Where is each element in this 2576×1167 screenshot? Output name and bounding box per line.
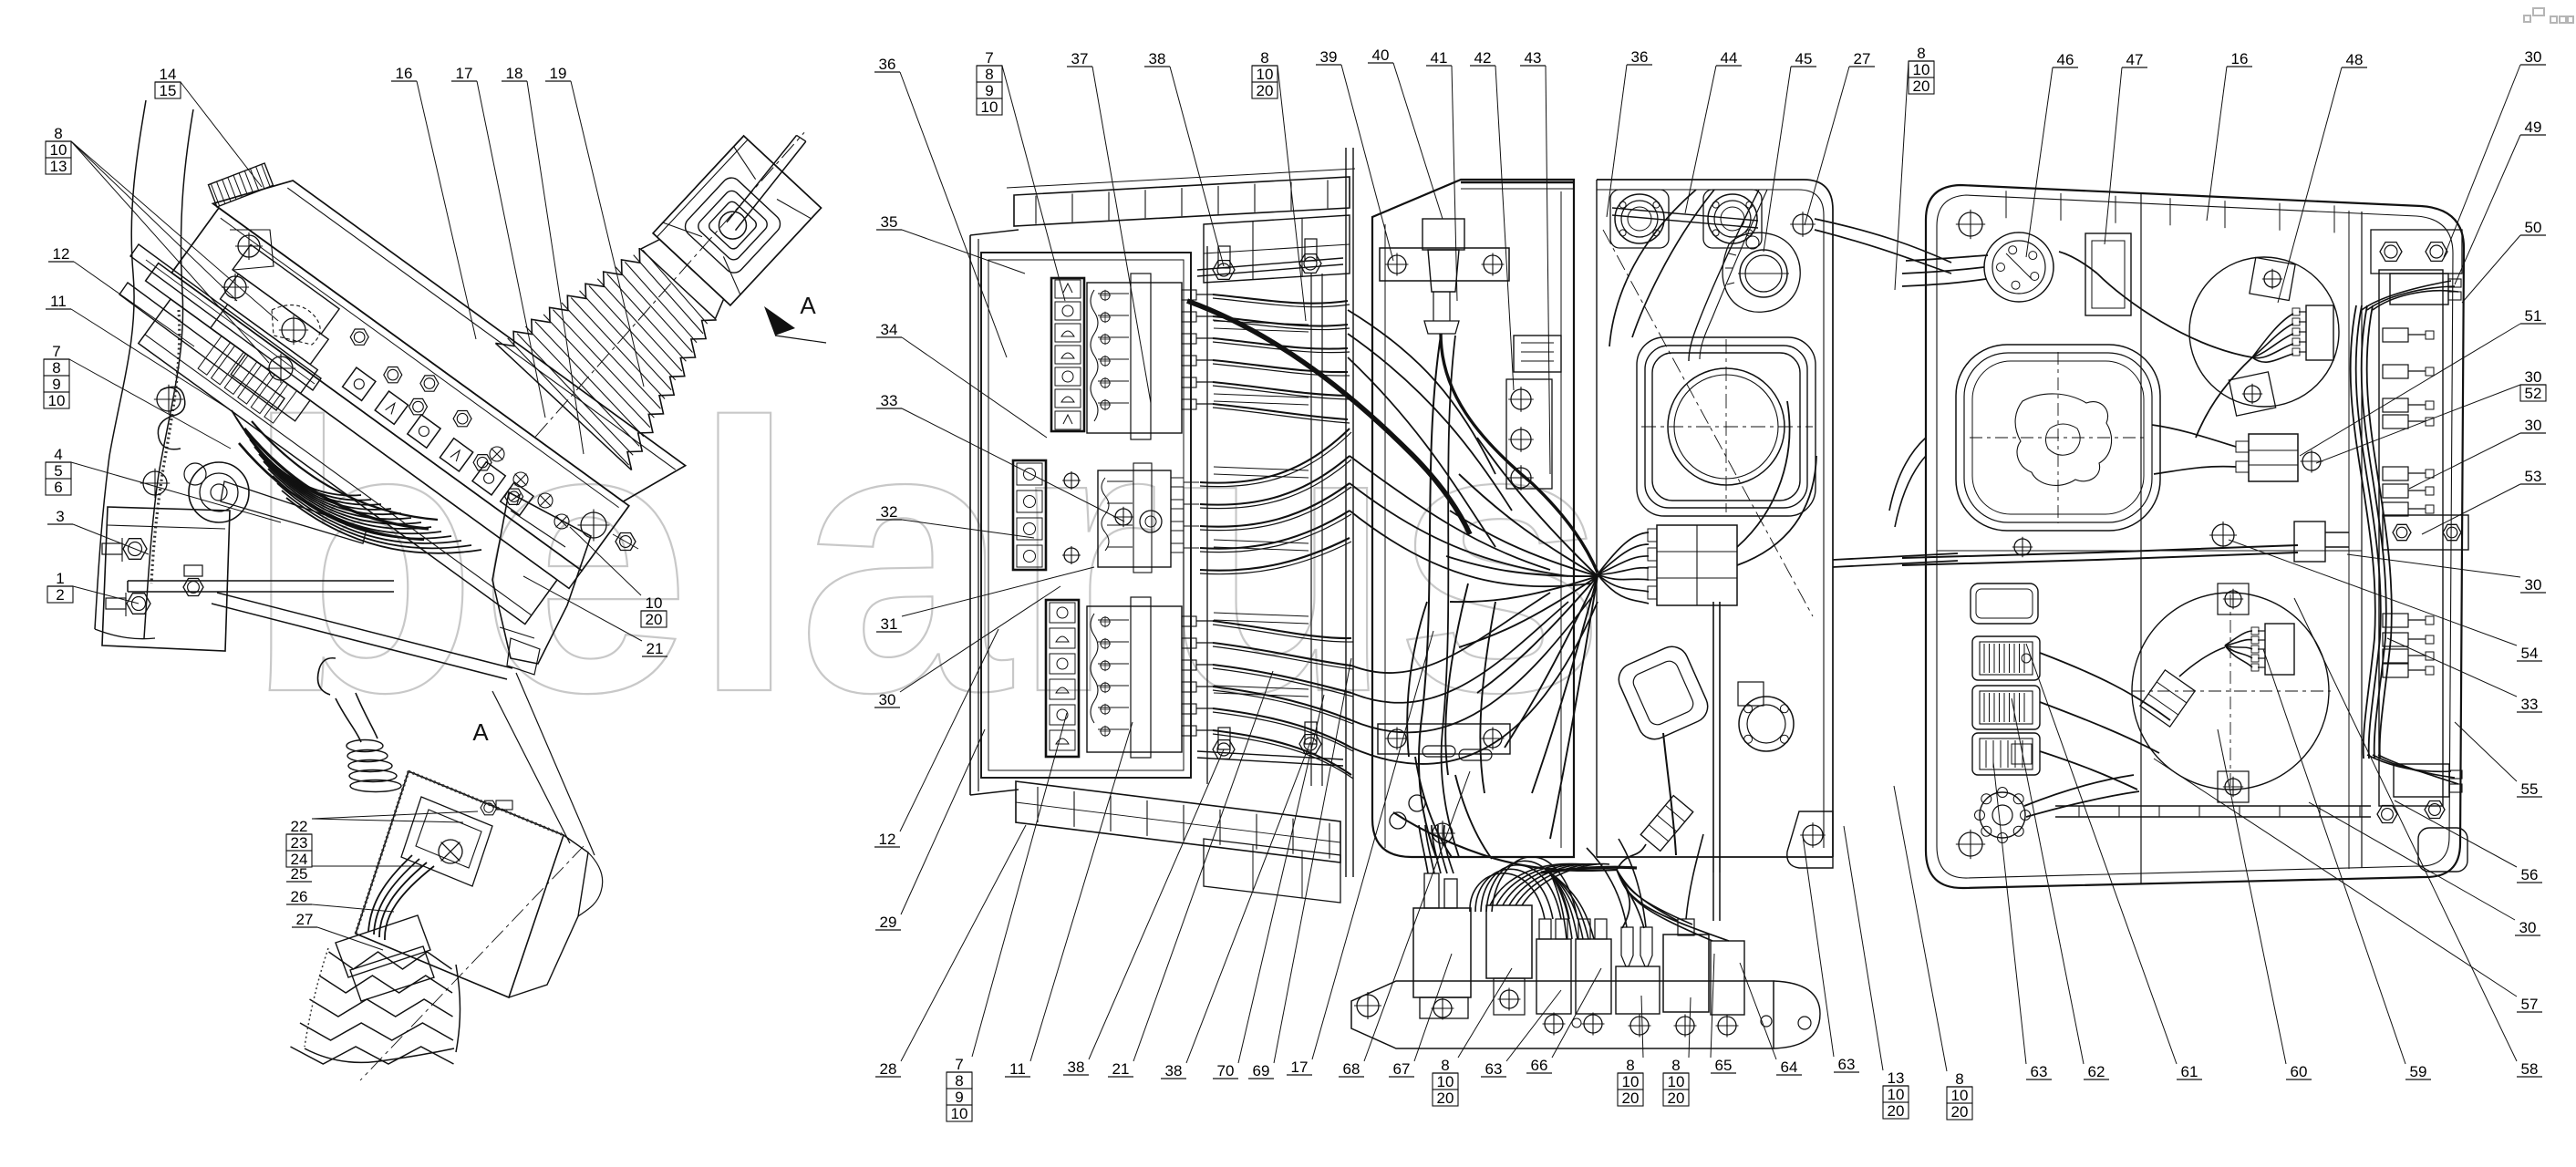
svg-text:38: 38 <box>1149 50 1166 67</box>
svg-text:21: 21 <box>1112 1060 1130 1078</box>
svg-text:30: 30 <box>2525 48 2542 66</box>
svg-text:67: 67 <box>1393 1060 1411 1078</box>
svg-text:17: 17 <box>1291 1059 1309 1076</box>
svg-text:3: 3 <box>56 508 64 525</box>
svg-text:13: 13 <box>50 158 67 175</box>
svg-text:21: 21 <box>647 640 664 657</box>
svg-text:27: 27 <box>296 911 314 928</box>
svg-text:8: 8 <box>1955 1070 1963 1088</box>
svg-text:12: 12 <box>879 831 896 848</box>
svg-text:9: 9 <box>52 376 60 393</box>
svg-text:10: 10 <box>48 392 66 409</box>
svg-text:57: 57 <box>2521 996 2539 1013</box>
svg-text:23: 23 <box>291 834 308 852</box>
svg-text:8: 8 <box>955 1072 963 1090</box>
svg-text:54: 54 <box>2521 645 2539 662</box>
svg-text:8: 8 <box>1671 1057 1680 1074</box>
svg-text:7: 7 <box>52 343 60 360</box>
svg-text:27: 27 <box>1854 50 1871 67</box>
svg-text:30: 30 <box>2525 417 2542 434</box>
svg-text:11: 11 <box>1009 1060 1026 1078</box>
svg-text:30: 30 <box>2525 576 2542 594</box>
svg-text:13: 13 <box>1888 1069 1905 1087</box>
svg-text:20: 20 <box>1888 1102 1905 1120</box>
svg-text:55: 55 <box>2521 780 2539 798</box>
svg-text:58: 58 <box>2521 1060 2539 1078</box>
svg-text:30: 30 <box>879 691 896 708</box>
svg-text:18: 18 <box>506 65 523 82</box>
svg-text:12: 12 <box>53 245 70 263</box>
svg-text:7: 7 <box>955 1056 963 1073</box>
svg-text:33: 33 <box>881 392 898 409</box>
svg-text:25: 25 <box>291 865 308 883</box>
svg-text:11: 11 <box>50 293 67 310</box>
svg-text:8: 8 <box>1441 1057 1449 1074</box>
svg-text:60: 60 <box>2291 1063 2308 1080</box>
svg-text:61: 61 <box>2181 1063 2198 1080</box>
svg-text:59: 59 <box>2410 1063 2427 1080</box>
svg-text:44: 44 <box>1721 49 1738 67</box>
svg-text:9: 9 <box>955 1089 963 1106</box>
svg-text:8: 8 <box>1260 49 1268 67</box>
svg-text:10: 10 <box>1913 61 1930 78</box>
svg-text:64: 64 <box>1781 1059 1798 1076</box>
svg-text:15: 15 <box>160 82 177 99</box>
svg-text:26: 26 <box>291 888 308 905</box>
svg-text:10: 10 <box>50 141 67 159</box>
svg-text:7: 7 <box>985 49 993 67</box>
svg-text:10: 10 <box>1668 1073 1685 1090</box>
svg-text:2: 2 <box>56 586 64 604</box>
svg-text:8: 8 <box>985 66 993 83</box>
svg-text:33: 33 <box>2521 696 2539 713</box>
svg-text:20: 20 <box>1913 77 1930 95</box>
svg-text:8: 8 <box>52 359 60 377</box>
svg-text:39: 39 <box>1320 48 1338 66</box>
svg-text:20: 20 <box>1668 1090 1685 1107</box>
svg-text:4: 4 <box>54 446 62 463</box>
svg-text:36: 36 <box>879 56 896 73</box>
svg-text:63: 63 <box>1838 1056 1856 1073</box>
svg-text:49: 49 <box>2525 119 2542 136</box>
svg-text:50: 50 <box>2525 219 2542 236</box>
svg-text:8: 8 <box>1917 45 1925 62</box>
svg-text:10: 10 <box>951 1105 968 1122</box>
svg-text:40: 40 <box>1372 46 1390 64</box>
svg-text:35: 35 <box>881 213 898 231</box>
svg-text:63: 63 <box>2031 1063 2048 1080</box>
svg-text:29: 29 <box>880 914 897 931</box>
svg-text:47: 47 <box>2126 51 2144 68</box>
svg-text:16: 16 <box>2231 50 2249 67</box>
svg-text:45: 45 <box>1795 50 1813 67</box>
svg-text:A: A <box>800 292 816 319</box>
svg-text:46: 46 <box>2057 51 2074 68</box>
svg-text:20: 20 <box>1257 82 1274 99</box>
svg-text:19: 19 <box>550 65 567 82</box>
svg-text:17: 17 <box>456 65 473 82</box>
svg-text:8: 8 <box>1626 1057 1634 1074</box>
svg-text:63: 63 <box>1485 1060 1503 1078</box>
svg-text:14: 14 <box>160 66 177 83</box>
svg-text:9: 9 <box>985 82 993 99</box>
svg-text:36: 36 <box>1631 48 1649 66</box>
svg-text:69: 69 <box>1253 1062 1270 1079</box>
svg-text:10: 10 <box>646 594 663 612</box>
svg-text:38: 38 <box>1165 1062 1183 1079</box>
svg-text:32: 32 <box>881 503 898 521</box>
svg-text:5: 5 <box>54 462 62 480</box>
svg-text:16: 16 <box>396 65 413 82</box>
svg-text:A: A <box>472 718 489 746</box>
svg-text:37: 37 <box>1071 50 1089 67</box>
svg-text:20: 20 <box>1622 1090 1640 1107</box>
svg-text:52: 52 <box>2525 385 2542 402</box>
svg-text:51: 51 <box>2525 307 2542 325</box>
svg-text:30: 30 <box>2519 919 2537 936</box>
svg-text:20: 20 <box>1951 1103 1969 1121</box>
svg-text:68: 68 <box>1343 1060 1360 1078</box>
svg-text:10: 10 <box>1622 1073 1640 1090</box>
svg-text:31: 31 <box>881 615 898 633</box>
svg-text:8: 8 <box>54 125 62 142</box>
svg-text:belarus: belarus <box>244 345 1607 772</box>
svg-text:10: 10 <box>1888 1086 1905 1103</box>
svg-text:65: 65 <box>1715 1057 1733 1074</box>
svg-text:70: 70 <box>1217 1062 1235 1079</box>
svg-text:10: 10 <box>1951 1087 1969 1104</box>
svg-text:43: 43 <box>1525 49 1542 67</box>
svg-text:42: 42 <box>1474 49 1492 67</box>
svg-text:48: 48 <box>2346 51 2364 68</box>
svg-text:20: 20 <box>646 611 663 628</box>
svg-text:10: 10 <box>1257 66 1274 83</box>
svg-text:1: 1 <box>56 570 64 587</box>
svg-text:56: 56 <box>2521 866 2539 883</box>
svg-text:28: 28 <box>880 1060 897 1078</box>
svg-text:66: 66 <box>1531 1057 1548 1074</box>
svg-text:22: 22 <box>291 818 308 835</box>
svg-text:10: 10 <box>981 98 998 116</box>
svg-text:62: 62 <box>2088 1063 2105 1080</box>
svg-text:53: 53 <box>2525 468 2542 485</box>
svg-text:34: 34 <box>881 321 898 338</box>
svg-text:38: 38 <box>1068 1059 1085 1076</box>
svg-text:30: 30 <box>2525 368 2542 386</box>
svg-text:6: 6 <box>54 479 62 496</box>
svg-text:20: 20 <box>1437 1090 1454 1107</box>
svg-text:41: 41 <box>1431 49 1448 67</box>
svg-text:10: 10 <box>1437 1073 1454 1090</box>
